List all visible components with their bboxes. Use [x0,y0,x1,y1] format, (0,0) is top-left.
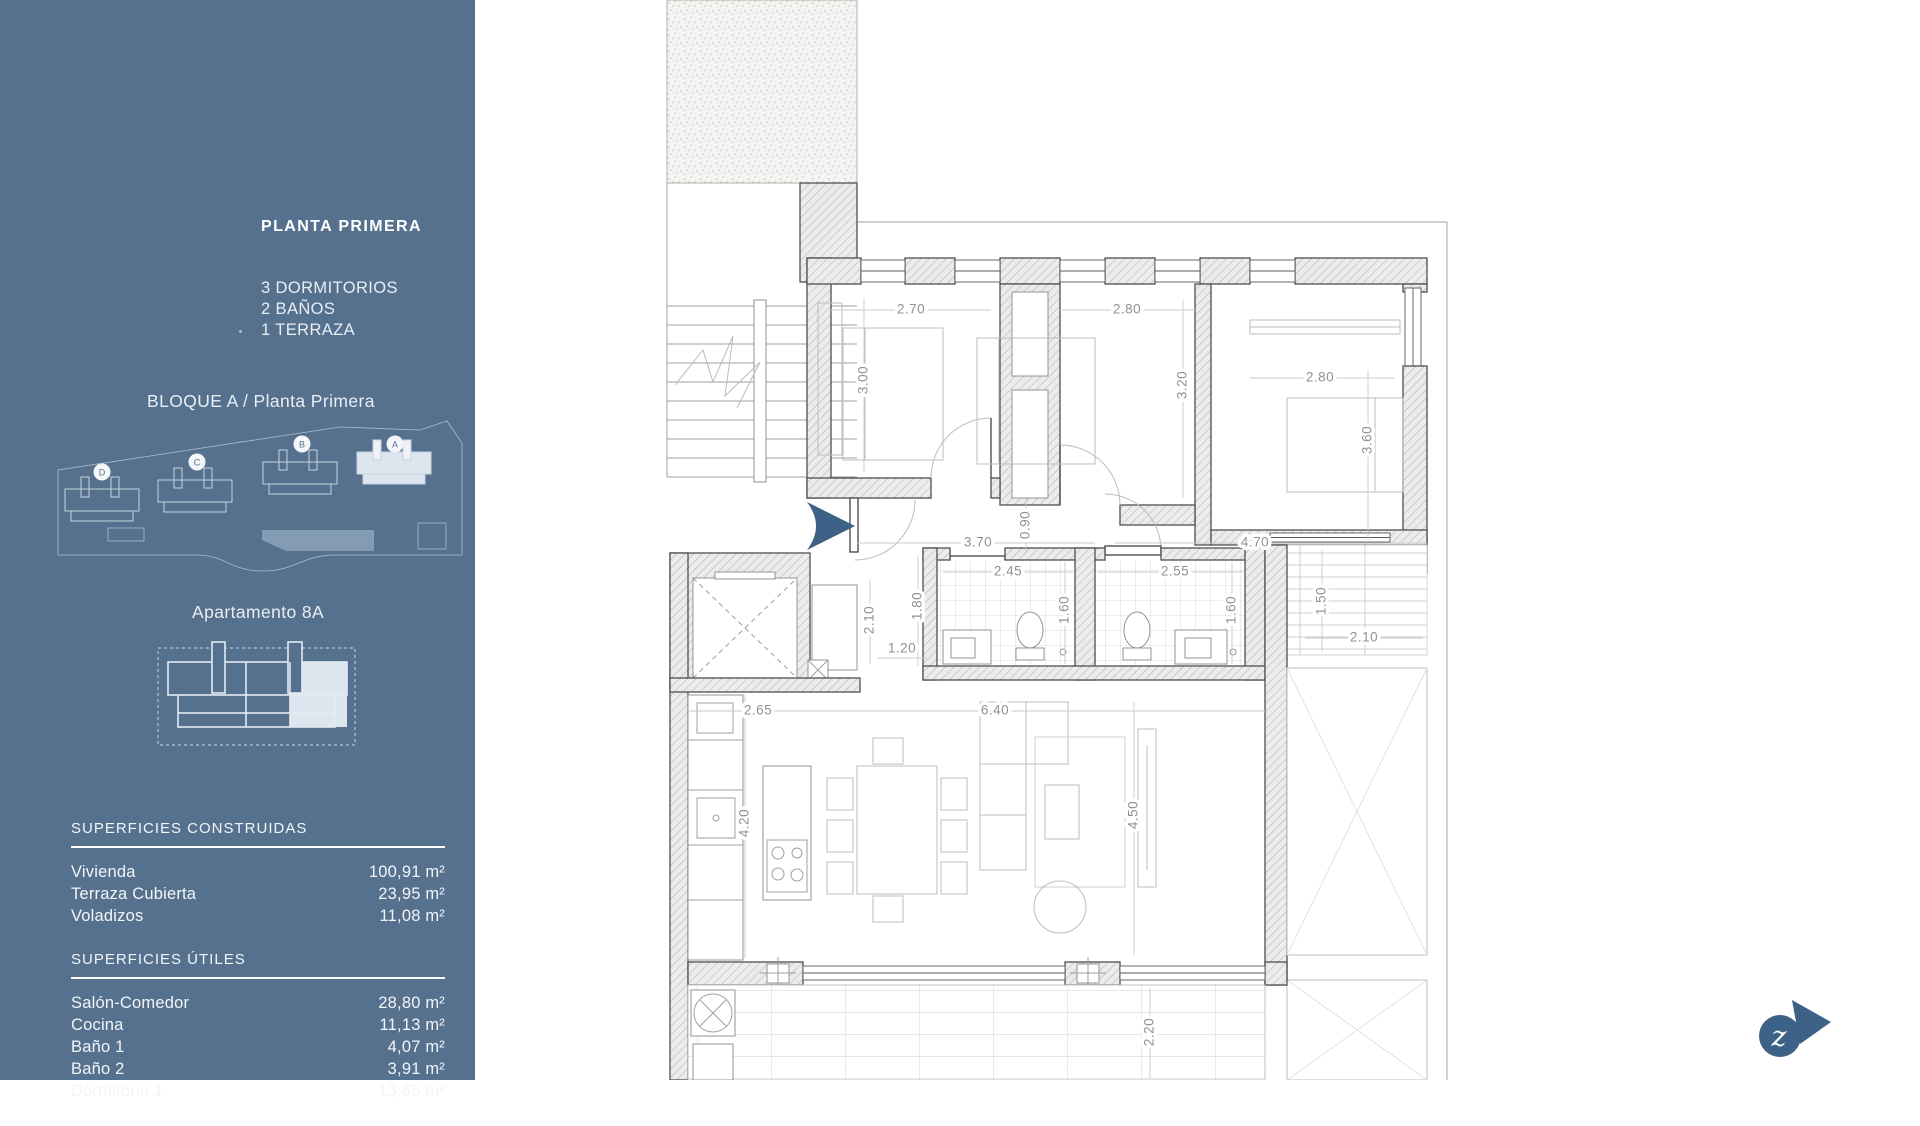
apartment-diagram [0,600,475,780]
marker-letter: C [194,458,201,468]
dimension-label: 3.20 [1175,371,1190,399]
brand-logo: z [1759,1000,1831,1057]
surface-row: Baño 23,91 m² [71,1058,445,1080]
surface-value: 4,07 m² [388,1036,445,1058]
sink-vanity [1175,630,1227,664]
dimension-label: 0.90 [1018,511,1033,539]
logo-letter: z [1771,1020,1787,1053]
elevator [670,553,857,690]
marker-letter: A [392,440,398,450]
planter [691,990,735,1080]
dimension-label: 1.20 [888,641,916,656]
tv-console [1138,729,1156,887]
dimension-label: 3.00 [856,366,871,394]
bottom-terrace [688,985,1265,1080]
surface-label: Terraza Cubierta [71,883,196,905]
surface-label: Cocina [71,1014,124,1036]
site-misc-structure [418,523,446,549]
surface-value: 23,95 m² [378,883,445,905]
bedroom-furniture [818,303,1403,492]
surface-row: Terraza Cubierta23,95 m² [71,883,445,905]
kitchen-island [763,766,811,900]
floor-drain [1230,649,1236,655]
surface-label: Baño 1 [71,1036,125,1058]
surface-label: Vivienda [71,861,136,883]
surface-label: Dormitorio 1 [71,1080,163,1102]
surface-value: 3,91 m² [388,1058,445,1080]
dimension-label: 2.55 [1161,564,1189,579]
toilet [1123,612,1151,660]
dimension-label: 1.80 [910,592,925,620]
bathrooms [923,548,1265,680]
kitchen-cabinets [688,695,743,960]
rug [1035,737,1125,887]
dining-set [827,738,967,922]
dimension-label: 4.70 [1241,535,1269,550]
site-pool [262,530,374,551]
coffee-table [1045,785,1079,839]
site-building-b [263,450,337,494]
table-superficies-utiles: SUPERFICIES ÚTILES Salón-Comedor28,80 m²… [71,951,445,1102]
bed [1287,398,1403,492]
dimension-label: 3.70 [964,535,992,550]
surface-row: Vivienda100,91 m² [71,861,445,883]
surface-value: 11,08 m² [380,905,446,927]
dimension-label: 3.60 [1360,426,1375,454]
elevator-door [715,572,775,579]
table-heading: SUPERFICIES CONSTRUIDAS [71,820,445,848]
marker-letter: D [99,468,106,478]
pouf [1034,881,1086,933]
dimension-label: 2.80 [1306,370,1334,385]
surface-row: Salón-Comedor28,80 m² [71,992,445,1014]
dimension-label: 2.80 [1113,302,1141,317]
dimension-label: 1.60 [1057,596,1072,624]
dimension-label: 1.50 [1314,587,1329,615]
surface-row: Baño 14,07 m² [71,1036,445,1058]
surface-label: Salón-Comedor [71,992,189,1014]
table-heading: SUPERFICIES ÚTILES [71,951,445,979]
sofa [980,702,1068,870]
surface-label: Voladizos [71,905,143,927]
surface-value: 28,80 m² [378,992,445,1014]
site-building-c [158,468,232,512]
dimension-label: 2.65 [744,703,772,718]
dimension-label: 2.70 [897,302,925,317]
dimension-label: 1.60 [1224,596,1239,624]
sink-vanity [943,630,991,664]
dimension-label: 2.45 [994,564,1022,579]
dimension-label: 2.20 [1142,1018,1157,1046]
shaft-duct [812,585,857,670]
surface-value: 13,65 m² [378,1080,445,1102]
interior-walls [807,284,1427,545]
dimension-label: 6.40 [981,703,1009,718]
wardrobe-niche [1012,292,1048,376]
site-diagram: D C B A [0,0,475,600]
stair-break-line [675,336,760,408]
table-superficies-construidas: SUPERFICIES CONSTRUIDAS Vivienda100,91 m… [71,820,445,927]
dimension-label: 4.20 [737,809,752,837]
adjacent-slab [667,0,857,183]
surface-tables: SUPERFICIES CONSTRUIDAS Vivienda100,91 m… [71,820,445,1126]
surface-value: 11,13 m² [380,1014,446,1036]
entry-arrow-icon [807,502,855,550]
surface-row: Dormitorio 113,65 m² [71,1080,445,1102]
wardrobe-niche [1012,390,1048,498]
marker-letter: B [299,440,305,450]
floorplan-canvas: 2.702.802.803.003.203.603.700.904.702.45… [475,0,1920,1080]
surface-row: Voladizos11,08 m² [71,905,445,927]
stair-handrail [754,300,766,482]
site-building-d [65,477,139,521]
site-misc-structure [108,528,144,541]
right-terrace [1265,545,1427,1080]
surface-label: Baño 2 [71,1058,125,1080]
surface-value: 100,91 m² [369,861,445,883]
surface-row: Cocina11,13 m² [71,1014,445,1036]
dimension-label: 2.10 [862,606,877,634]
dimension-label: 2.10 [1350,630,1378,645]
toilet [1016,612,1044,660]
sidebar: PLANTA PRIMERA 3 DORMITORIOS2 BAÑOS1 TER… [0,0,475,1080]
table-rows: Vivienda100,91 m²Terraza Cubierta23,95 m… [71,848,445,927]
dimension-label: 4.50 [1126,801,1141,829]
table-rows: Salón-Comedor28,80 m²Cocina11,13 m²Baño … [71,979,445,1102]
